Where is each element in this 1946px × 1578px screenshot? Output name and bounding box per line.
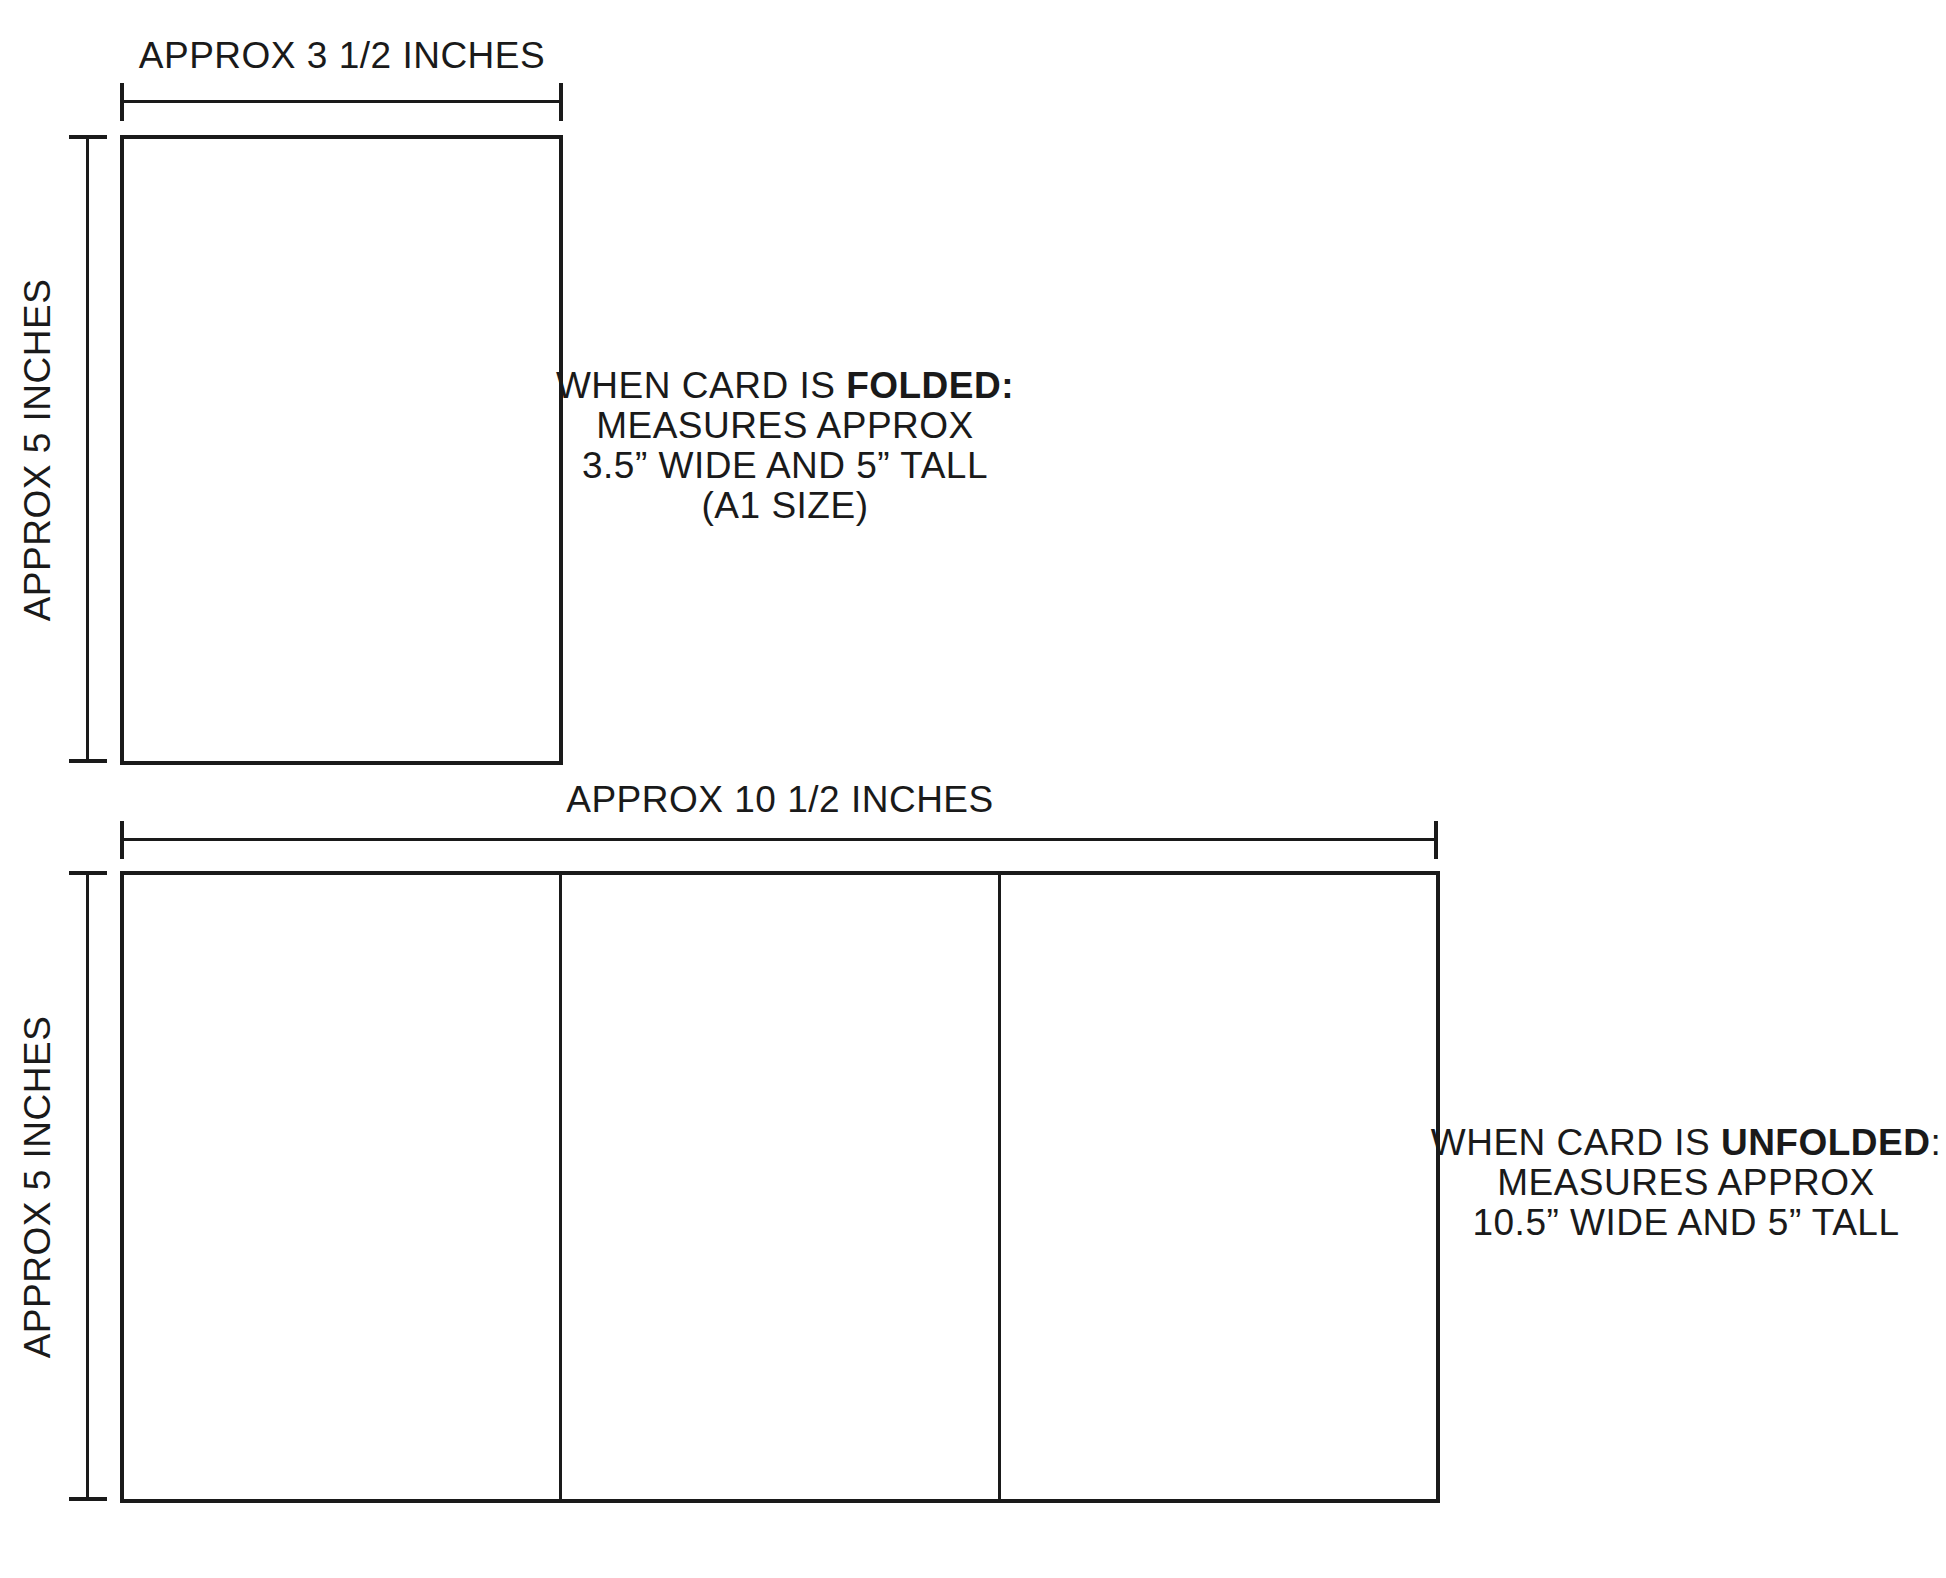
card-panel-left <box>124 875 559 1499</box>
unfolded-width-dimension-line <box>122 838 1436 841</box>
card-panel-middle <box>559 875 1000 1499</box>
folded-height-label: APPROX 5 INCHES <box>16 270 60 630</box>
card-dimensions-diagram: APPROX 3 1/2 INCHES APPROX 5 INCHES WHEN… <box>0 0 1946 1578</box>
folded-width-label: APPROX 3 1/2 INCHES <box>122 34 562 78</box>
dimension-tick-bottom <box>69 759 107 763</box>
unfolded-note-line1: WHEN CARD IS UNFOLDED: <box>1426 1123 1946 1163</box>
unfolded-note-line2: MEASURES APPROX <box>1426 1163 1946 1203</box>
unfolded-width-label: APPROX 10 1/2 INCHES <box>122 778 1438 822</box>
unfolded-height-dimension-line <box>86 873 89 1501</box>
dimension-tick-top <box>69 871 107 875</box>
folded-width-dimension-line <box>122 100 562 103</box>
folded-note: WHEN CARD IS FOLDED: MEASURES APPROX 3.5… <box>535 366 1035 526</box>
dimension-tick-bottom <box>69 1497 107 1501</box>
folded-height-dimension-line <box>86 137 89 763</box>
dimension-tick-left <box>120 821 124 859</box>
dimension-tick-top <box>69 135 107 139</box>
folded-note-line2: MEASURES APPROX <box>535 406 1035 446</box>
unfolded-note: WHEN CARD IS UNFOLDED: MEASURES APPROX 1… <box>1426 1123 1946 1243</box>
folded-note-line4: (A1 SIZE) <box>535 486 1035 526</box>
unfolded-note-line3: 10.5” WIDE AND 5” TALL <box>1426 1203 1946 1243</box>
folded-note-line1: WHEN CARD IS FOLDED: <box>535 366 1035 406</box>
unfolded-card-outline <box>120 871 1440 1503</box>
dimension-tick-right <box>559 83 563 121</box>
unfolded-card-panels <box>124 875 1436 1499</box>
dimension-tick-right <box>1434 821 1438 859</box>
card-panel-right <box>1001 875 1436 1499</box>
folded-card-outline <box>120 135 563 765</box>
unfolded-height-label: APPROX 5 INCHES <box>16 1007 60 1367</box>
dimension-tick-left <box>120 83 124 121</box>
folded-note-line3: 3.5” WIDE AND 5” TALL <box>535 446 1035 486</box>
